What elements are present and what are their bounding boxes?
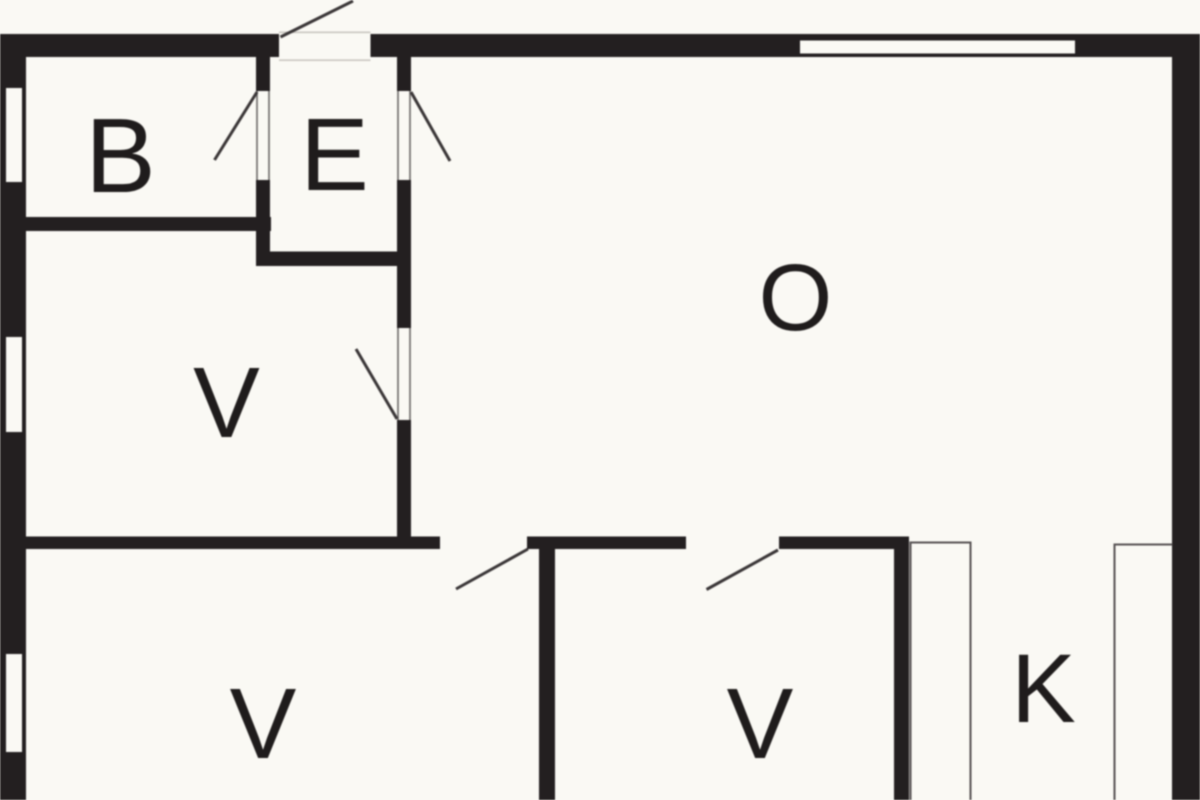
svg-text:K: K (1011, 634, 1076, 743)
svg-text:V: V (230, 668, 297, 780)
svg-text:V: V (193, 347, 260, 459)
svg-text:E: E (300, 97, 369, 212)
svg-text:V: V (727, 668, 794, 780)
svg-text:O: O (759, 245, 833, 351)
svg-text:B: B (85, 97, 156, 215)
